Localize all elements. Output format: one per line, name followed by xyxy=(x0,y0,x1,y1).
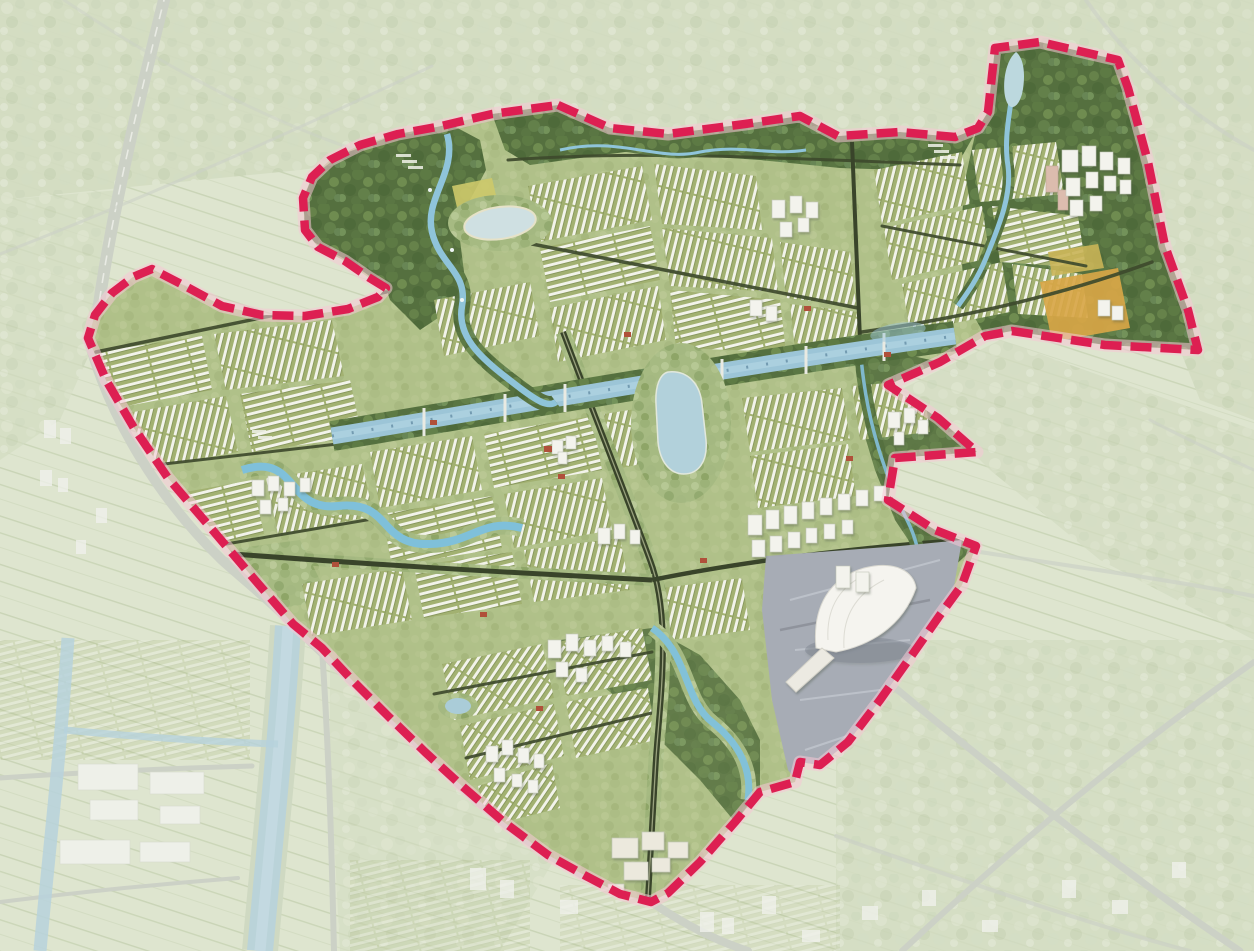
campus-building xyxy=(612,838,638,858)
tower-block xyxy=(1118,158,1130,174)
tower-block xyxy=(894,432,904,445)
tower-block xyxy=(534,754,544,768)
pond xyxy=(445,698,471,714)
faded-building xyxy=(922,890,936,906)
village-row xyxy=(940,156,955,159)
tower-block xyxy=(268,476,279,491)
tower-block xyxy=(1082,146,1096,166)
tower-block xyxy=(918,420,928,434)
tower-block xyxy=(806,528,817,543)
red-roof-building xyxy=(480,612,487,617)
tower-block xyxy=(766,510,779,529)
tower-block xyxy=(598,528,610,544)
tower-block xyxy=(300,478,310,492)
tower-block xyxy=(772,200,785,218)
tower-block xyxy=(820,498,832,515)
village-row xyxy=(408,166,423,169)
tower-block xyxy=(1066,178,1080,196)
faded-tower xyxy=(60,428,71,444)
faded-tower xyxy=(470,868,486,890)
red-roof-building xyxy=(430,420,437,425)
tower-block xyxy=(784,506,797,524)
tower-block xyxy=(788,532,800,548)
tower-block xyxy=(856,490,868,506)
industrial-shed xyxy=(60,840,130,864)
red-roof-building xyxy=(558,474,565,479)
tower-block xyxy=(1046,166,1058,192)
campus-building xyxy=(642,832,664,850)
faded-building xyxy=(982,920,998,932)
tower-block xyxy=(576,668,587,682)
faded-tower xyxy=(700,912,714,932)
red-roof-building xyxy=(536,706,543,711)
faded-tower xyxy=(1062,880,1076,898)
village-row xyxy=(396,154,411,157)
industrial-shed xyxy=(140,842,190,862)
faded-building xyxy=(802,930,820,942)
faded-tower xyxy=(500,880,514,898)
tower-block xyxy=(888,412,900,428)
tower-block xyxy=(548,640,561,658)
tower-block xyxy=(1104,176,1116,191)
faded-tower xyxy=(722,918,734,934)
campus-building xyxy=(668,842,688,858)
industrial-shed xyxy=(160,806,200,824)
tower-block xyxy=(904,408,915,423)
tower-block xyxy=(824,524,835,539)
village-row xyxy=(252,430,266,433)
faded-building xyxy=(1172,862,1186,878)
village-row xyxy=(402,160,417,163)
tower-block xyxy=(1098,300,1110,316)
rapids xyxy=(460,298,464,302)
red-roof-building xyxy=(846,456,853,461)
rapids xyxy=(428,188,432,192)
village-row xyxy=(934,150,949,153)
red-roof-building xyxy=(544,446,552,452)
industrial-shed xyxy=(90,800,138,820)
tower-block xyxy=(1090,196,1102,211)
tower-block xyxy=(1100,152,1113,170)
tower-block xyxy=(566,436,576,449)
campus-building xyxy=(624,862,648,880)
tower-block xyxy=(620,642,631,657)
campus-building xyxy=(652,858,670,872)
tower-block xyxy=(494,768,505,782)
faded-building xyxy=(862,906,878,920)
red-roof-building xyxy=(884,352,891,357)
tower-block xyxy=(1062,150,1078,172)
tower-block xyxy=(528,780,538,793)
tower-block xyxy=(252,480,264,496)
tower-block xyxy=(278,498,288,511)
red-roof-building xyxy=(332,562,339,567)
tower-block xyxy=(752,540,765,557)
tower-block xyxy=(766,306,777,321)
faded-tower xyxy=(76,540,86,554)
tower-block xyxy=(1070,200,1083,216)
faded-housing-texture xyxy=(350,860,530,951)
tower-block xyxy=(260,500,271,514)
village-row xyxy=(928,144,943,147)
tower-block xyxy=(856,572,869,592)
tower-block xyxy=(512,774,522,787)
tower-block xyxy=(836,566,850,588)
housing-block xyxy=(662,578,750,640)
masterplan-aerial-render xyxy=(0,0,1254,951)
tower-block xyxy=(284,482,295,496)
tower-block xyxy=(806,202,818,218)
tower-block xyxy=(558,452,567,464)
rapids xyxy=(450,248,454,252)
tower-block xyxy=(556,662,568,677)
tower-block xyxy=(1086,172,1098,188)
red-roof-building xyxy=(700,558,707,563)
tower-block xyxy=(518,748,529,763)
tower-block xyxy=(584,640,596,656)
tower-block xyxy=(602,636,613,651)
render-canvas xyxy=(0,0,1254,951)
tower-block xyxy=(842,520,853,534)
red-roof-building xyxy=(624,332,631,337)
industrial-shed xyxy=(150,772,204,794)
industrial-shed xyxy=(78,764,138,790)
tower-block xyxy=(566,634,578,651)
faded-building xyxy=(560,900,578,914)
tower-block xyxy=(802,502,814,519)
tower-block xyxy=(798,218,809,232)
tower-block xyxy=(630,530,640,544)
tower-block xyxy=(1120,180,1131,194)
tower-block xyxy=(790,196,802,213)
tower-block xyxy=(748,515,762,535)
tower-block xyxy=(770,536,782,552)
red-roof-building xyxy=(804,306,811,311)
tower-block xyxy=(780,222,792,237)
tower-block xyxy=(750,300,762,316)
faded-tower xyxy=(762,896,776,914)
tower-block xyxy=(614,524,625,539)
tower-block xyxy=(502,740,513,755)
faded-building xyxy=(1112,900,1128,914)
faded-tower xyxy=(96,508,107,523)
tower-block xyxy=(486,746,498,762)
faded-tower xyxy=(58,478,68,492)
tower-block xyxy=(838,494,850,510)
faded-tower xyxy=(40,470,52,486)
tower-block xyxy=(1112,306,1123,320)
village-row xyxy=(258,436,272,439)
faded-tower xyxy=(44,420,56,438)
